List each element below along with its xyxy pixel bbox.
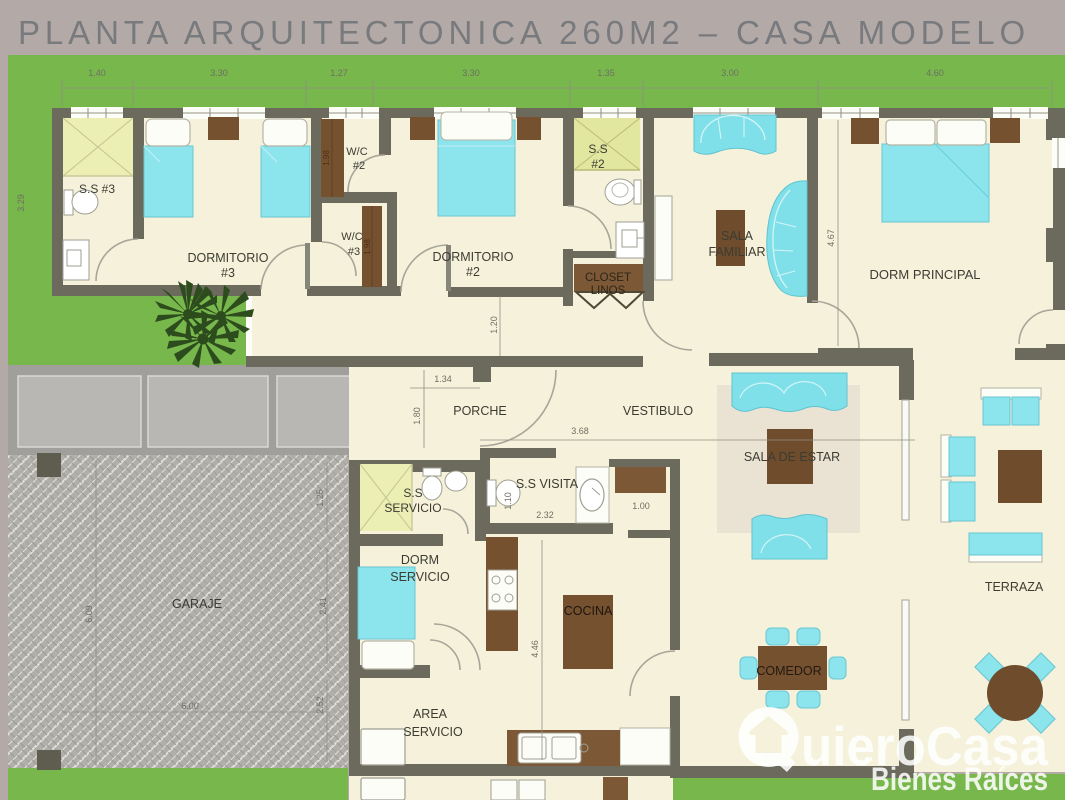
svg-text:#2: #2	[353, 160, 365, 172]
svg-text:#2: #2	[591, 157, 605, 171]
svg-text:#3: #3	[348, 246, 360, 258]
svg-text:SERVICIO: SERVICIO	[403, 725, 463, 739]
svg-text:1.34: 1.34	[434, 374, 452, 384]
svg-text:1.00: 1.00	[632, 501, 650, 511]
svg-text:PORCHE: PORCHE	[453, 404, 506, 418]
svg-text:AREA: AREA	[413, 707, 448, 721]
svg-text:VESTIBULO: VESTIBULO	[623, 404, 693, 418]
svg-text:2.52: 2.52	[315, 696, 325, 714]
svg-text:1.40: 1.40	[88, 68, 106, 78]
svg-text:DORM: DORM	[401, 553, 439, 567]
svg-text:2.32: 2.32	[536, 510, 554, 520]
svg-text:1.98: 1.98	[363, 239, 372, 255]
svg-text:6.09: 6.09	[84, 605, 94, 623]
svg-text:#2: #2	[466, 265, 480, 279]
svg-text:S.S: S.S	[403, 486, 422, 500]
svg-text:SERVICIO: SERVICIO	[390, 570, 450, 584]
svg-text:3.30: 3.30	[462, 68, 480, 78]
svg-text:DORM PRINCIPAL: DORM PRINCIPAL	[870, 267, 981, 282]
svg-text:GARAJE: GARAJE	[172, 597, 222, 611]
svg-text:4.67: 4.67	[826, 229, 836, 247]
svg-text:COCINA: COCINA	[564, 604, 613, 618]
svg-text:1.98: 1.98	[322, 150, 331, 166]
svg-text:FAMILIAR: FAMILIAR	[709, 245, 766, 259]
svg-text:2.41: 2.41	[318, 597, 328, 615]
svg-text:6.00: 6.00	[181, 701, 199, 711]
svg-text:4.46: 4.46	[530, 640, 540, 658]
svg-text:PLANTA ARQUITECTONICA 260M2 –: PLANTA ARQUITECTONICA 260M2 – CASA MODEL…	[18, 14, 1030, 51]
svg-text:CLOSET: CLOSET	[585, 272, 631, 284]
svg-text:S.S VISITA: S.S VISITA	[516, 477, 579, 491]
svg-text:W/C: W/C	[346, 146, 367, 158]
svg-text:SERVICIO: SERVICIO	[384, 501, 441, 515]
svg-text:LINOS: LINOS	[591, 285, 626, 297]
svg-text:TERRAZA: TERRAZA	[985, 580, 1044, 594]
svg-text:Bienes Raíces: Bienes Raíces	[871, 761, 1048, 797]
svg-text:S.S: S.S	[588, 142, 607, 156]
svg-text:DORMITORIO: DORMITORIO	[432, 250, 513, 264]
svg-text:1.25: 1.25	[315, 489, 325, 507]
svg-text:SALA: SALA	[721, 229, 754, 243]
svg-text:3.30: 3.30	[210, 68, 228, 78]
svg-text:1.35: 1.35	[597, 68, 615, 78]
svg-text:1.80: 1.80	[412, 407, 422, 425]
svg-text:3.29: 3.29	[16, 194, 26, 212]
svg-text:SALA DE ESTAR: SALA DE ESTAR	[744, 450, 840, 464]
svg-text:#3: #3	[221, 266, 235, 280]
svg-text:3.68: 3.68	[571, 426, 589, 436]
svg-text:1.20: 1.20	[489, 316, 499, 334]
svg-text:S.S #3: S.S #3	[79, 182, 115, 196]
svg-text:4.60: 4.60	[926, 68, 944, 78]
svg-text:1.27: 1.27	[330, 68, 348, 78]
svg-text:W/C: W/C	[341, 231, 362, 243]
svg-text:3.00: 3.00	[721, 68, 739, 78]
svg-text:1.10: 1.10	[503, 492, 513, 510]
svg-text:COMEDOR: COMEDOR	[756, 664, 821, 678]
svg-text:DORMITORIO: DORMITORIO	[187, 251, 268, 265]
